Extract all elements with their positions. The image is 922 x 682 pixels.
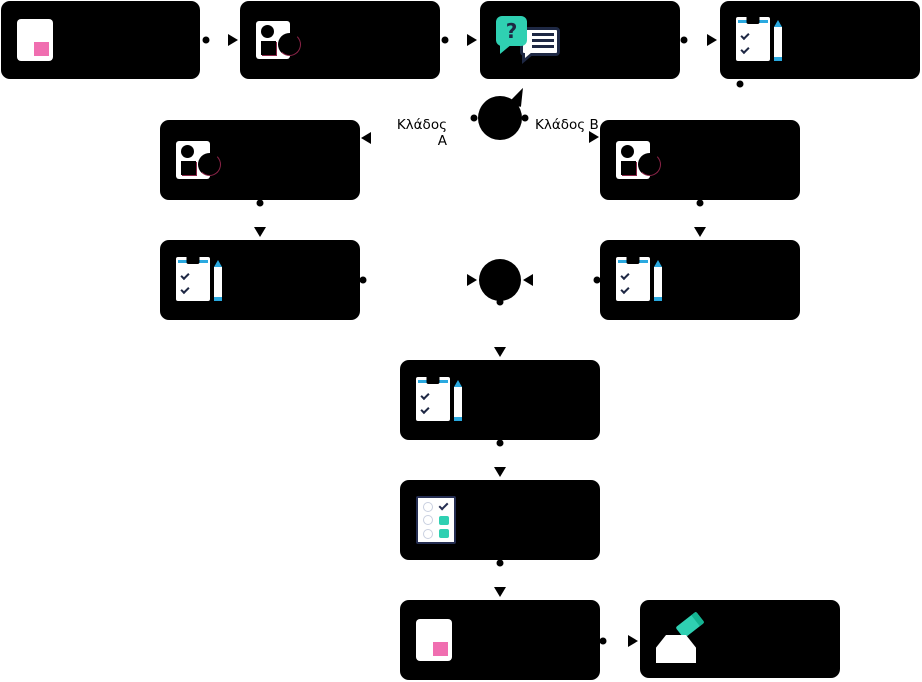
person-head-circle [621,145,634,158]
person-icon [176,141,210,179]
node-submit-ballot[interactable] [640,600,840,678]
check-mark [740,31,749,40]
arrowhead-right [467,274,477,286]
clipboard-pencil-icon [416,377,468,423]
arrowhead-down [254,227,266,237]
check-mark [740,45,749,54]
pink-square [34,42,49,56]
card-icon [416,619,452,661]
node-branch-b-profile[interactable] [600,120,800,200]
person-icon [256,21,290,59]
check-mark [420,391,429,400]
arrowhead-right [228,34,238,46]
question-mark: ? [506,19,518,43]
person-icon [616,141,650,179]
pencil-icon [214,260,222,301]
arrowhead-right [589,131,599,143]
node-start-card[interactable] [1,1,200,79]
question-chat-icon: ? [496,16,560,64]
checklist-icon [416,496,456,544]
pink-square [433,642,448,656]
chat-bubble-tail [500,44,512,54]
node-branch-b-form[interactable] [600,240,800,320]
chat-bubble-question: ? [496,16,527,46]
person-body-square [261,41,276,55]
pencil-icon [454,380,462,421]
connector-dot [471,115,478,122]
connector-dot [203,37,210,44]
person-body-square [181,161,196,175]
ballot-card [675,611,704,638]
connector-dot [594,277,601,284]
teal-square [439,529,449,538]
node-result-card[interactable] [400,600,600,680]
connector-dot [522,115,529,122]
node-form[interactable] [720,1,920,79]
clipboard-clip [627,255,640,264]
check-mark [180,271,189,280]
clipboard-pencil-icon [736,17,788,63]
clipboard-pencil-icon [176,257,228,303]
node-merged-form[interactable] [400,360,600,440]
person-overlap-circle [638,153,661,176]
connector-dot [360,277,367,284]
clipboard-body [736,17,770,61]
check-mark [620,285,629,294]
node-branch-a-profile[interactable] [160,120,360,200]
person-overlap-circle [198,153,221,176]
check-mark [180,285,189,294]
arrowhead-right [707,34,717,46]
connector-dot [442,37,449,44]
person-body-square [621,161,636,175]
connector-dot [497,560,504,567]
connector-dot [600,638,607,645]
teal-square [439,516,449,525]
check-mark [439,500,449,510]
diagram-stage: Κλάδος Α Κλάδος Β ? [0,0,922,682]
connector-dot [697,200,704,207]
person-overlap-circle [278,33,301,56]
ballot-box-icon [656,613,708,665]
arrowhead-left [523,274,533,286]
person-head-circle [181,145,194,158]
checklist-circle [423,515,433,525]
clipboard-pencil-icon [616,257,668,303]
person-head-circle [261,25,274,38]
clipboard-body [616,257,650,301]
arrowhead-down [694,227,706,237]
clipboard-clip [747,15,760,24]
connector-dot [681,37,688,44]
arrowhead-down [494,587,506,597]
connector-dot [257,200,264,207]
arrowhead-left [361,132,371,144]
card-icon [17,19,53,61]
node-question-chat[interactable]: ? [480,1,680,79]
connector-dot [497,299,504,306]
decision-node[interactable] [478,96,522,140]
merge-node[interactable] [479,259,521,301]
arrowhead-right [467,34,477,46]
arrowhead-down [494,347,506,357]
ballot-box-front [656,635,696,663]
checklist-circle [423,529,433,539]
clipboard-clip [187,255,200,264]
checklist-circle [423,502,433,512]
clipboard-body [416,377,450,421]
connector-dot [737,81,744,88]
branch-a-label: Κλάδος Α [385,117,447,149]
pencil-icon [774,20,782,61]
connector-dot [497,440,504,447]
node-checklist[interactable] [400,480,600,560]
node-profile[interactable] [240,1,440,79]
clipboard-body [176,257,210,301]
pencil-icon [654,260,662,301]
arrowhead-down [494,467,506,477]
arrowhead-right [628,635,638,647]
check-mark [620,271,629,280]
clipboard-clip [427,375,440,384]
node-branch-a-form[interactable] [160,240,360,320]
check-mark [420,405,429,414]
